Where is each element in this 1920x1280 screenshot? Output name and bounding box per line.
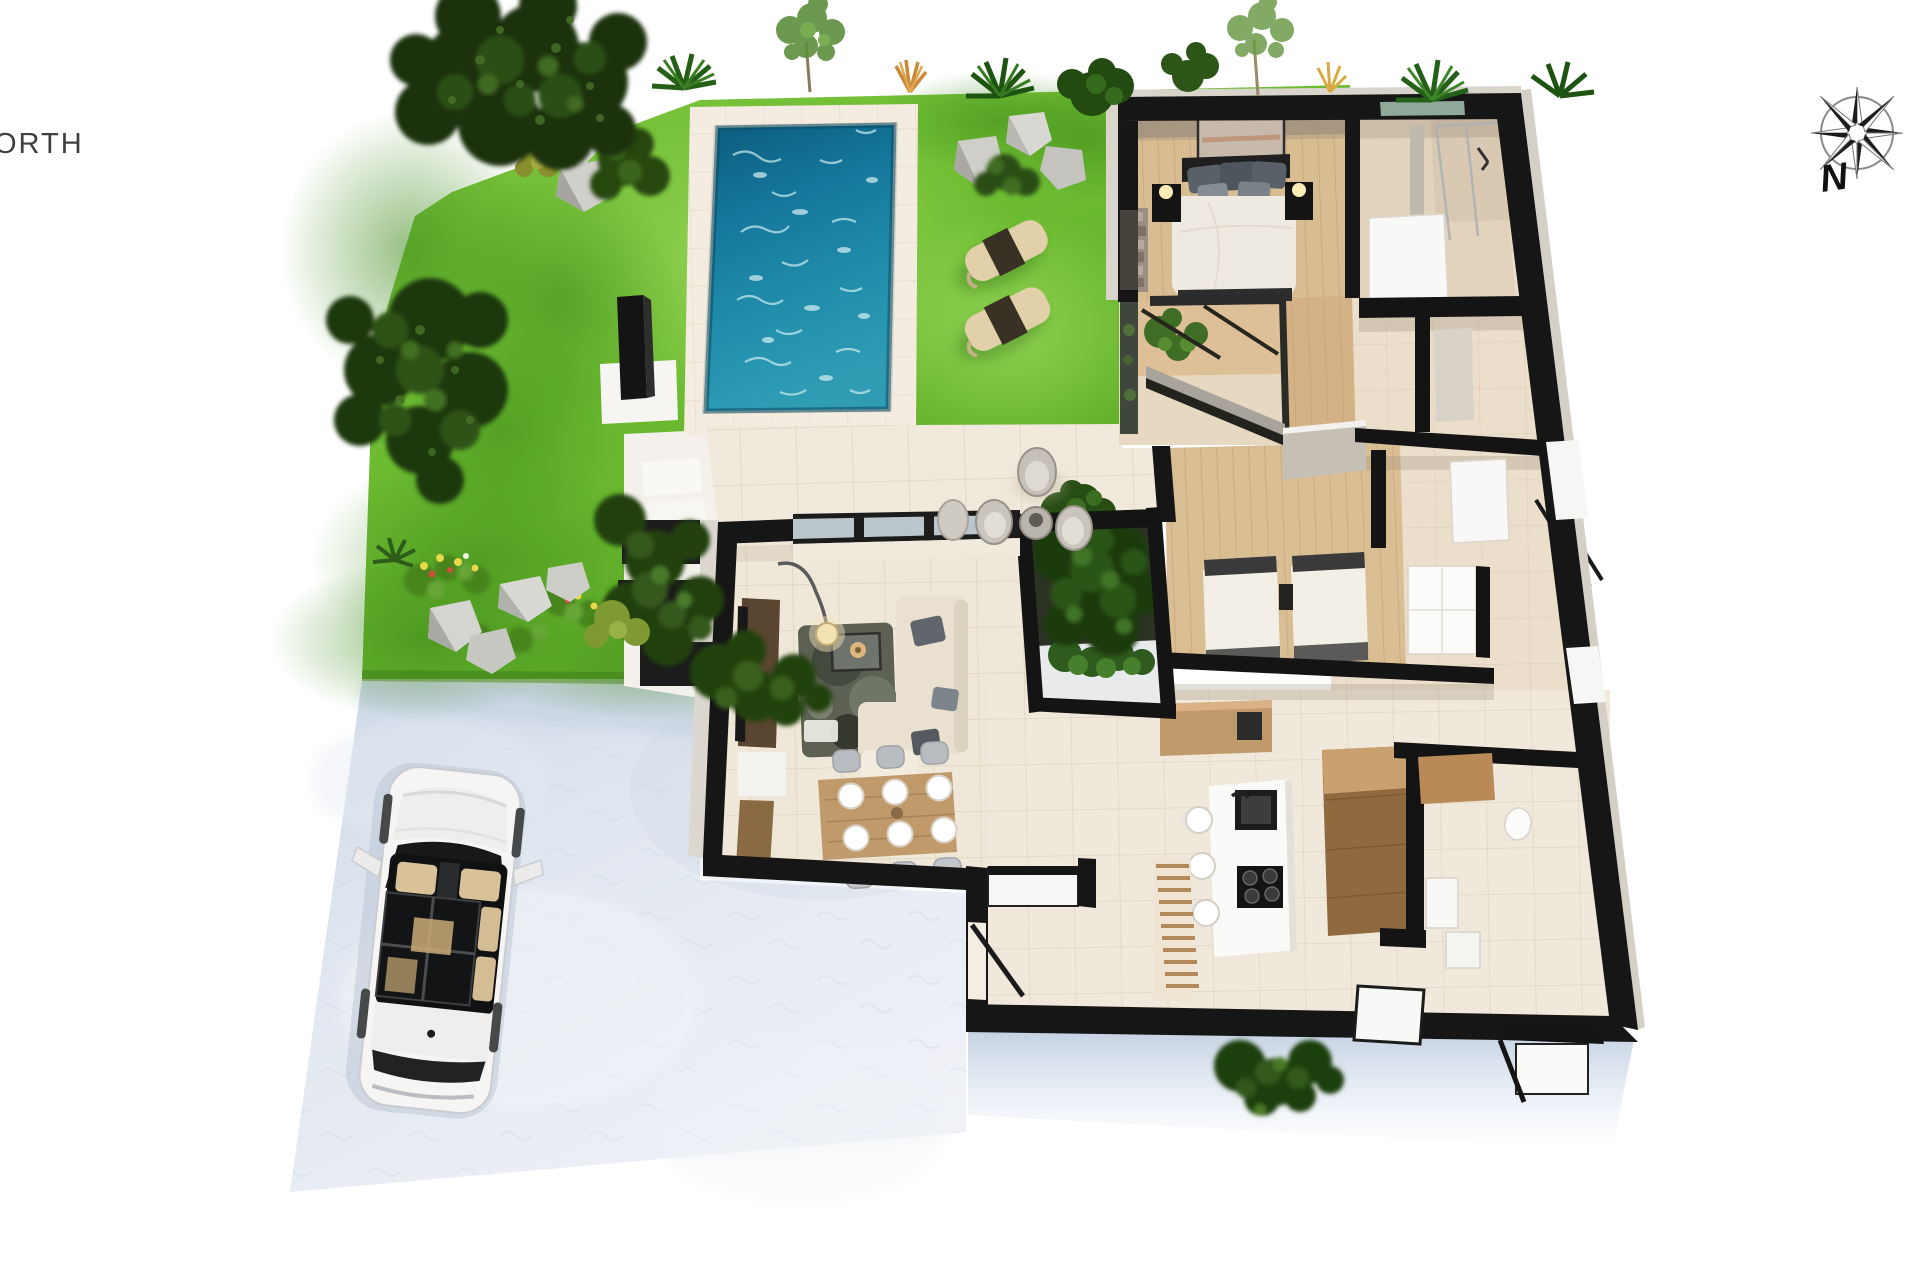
svg-text:ORTH: ORTH bbox=[0, 128, 84, 160]
